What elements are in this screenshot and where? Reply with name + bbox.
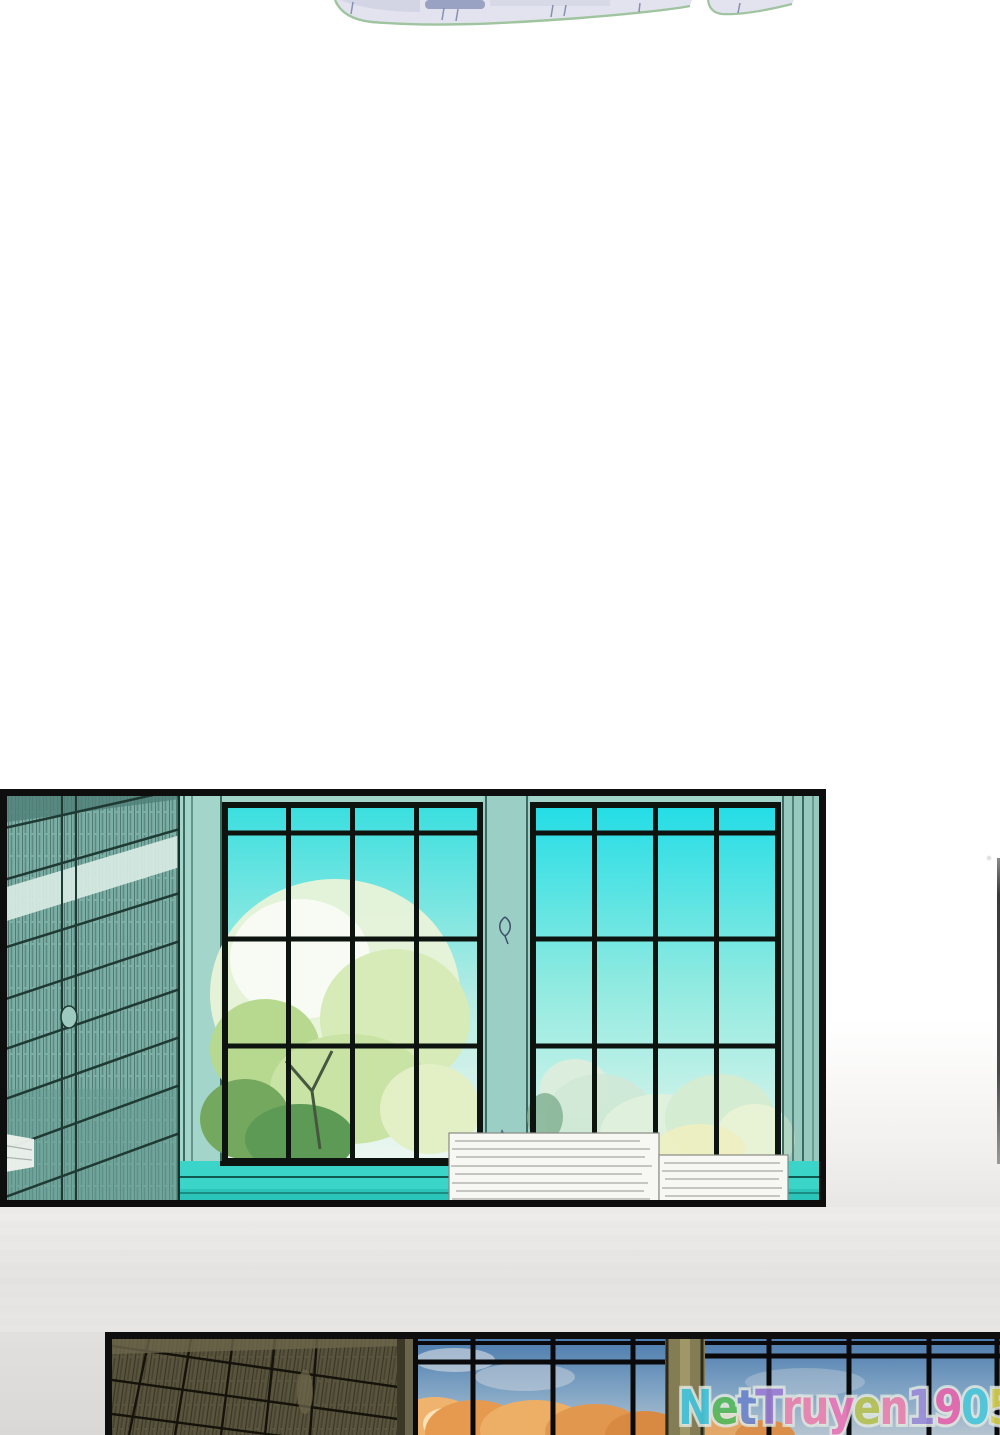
watermark-letter: 1 [907, 1384, 934, 1432]
book-stack-short [659, 1155, 788, 1207]
dusk-frame-edge-dark [397, 1339, 405, 1435]
book-stack-tall [449, 1133, 659, 1207]
watermark-letter: r [782, 1384, 801, 1432]
page-margin-left [0, 1332, 105, 1435]
watermark-letter: 9 [934, 1384, 961, 1432]
panel-dusk-border-left [105, 1332, 112, 1435]
comic-page: NetTruyen1905 [0, 0, 1000, 1435]
top-artwork-fragment [320, 0, 810, 34]
watermark-letter: e [853, 1384, 879, 1432]
page-blemish-mark [986, 855, 992, 861]
panel-gap [0, 1207, 1000, 1332]
watermark-letter: e [711, 1384, 737, 1432]
watermark-letter: N [678, 1384, 711, 1432]
watermark-letter: n [879, 1384, 907, 1432]
watermark-letter: 5 [988, 1384, 1000, 1432]
shelf-ornament [297, 1370, 313, 1414]
watermark-letter: u [800, 1384, 828, 1432]
column-rosette [61, 1006, 77, 1028]
page-gradient-right [826, 789, 1000, 1207]
bookshelf-dusk [112, 1339, 405, 1435]
window-right-day [527, 805, 795, 1174]
window-right-jamb [783, 789, 819, 1207]
watermark: NetTruyen1905 [678, 1384, 962, 1434]
watermark-letter: y [828, 1384, 853, 1432]
panel-dusk-border-top [105, 1332, 1000, 1339]
window-left-day [200, 805, 480, 1174]
watermark-letter: T [755, 1384, 781, 1432]
dusk-frame-edge-light [405, 1339, 413, 1435]
watermark-letter: t [737, 1384, 755, 1432]
watermark-letter: 0 [961, 1384, 988, 1432]
panel-library-day [0, 789, 826, 1207]
